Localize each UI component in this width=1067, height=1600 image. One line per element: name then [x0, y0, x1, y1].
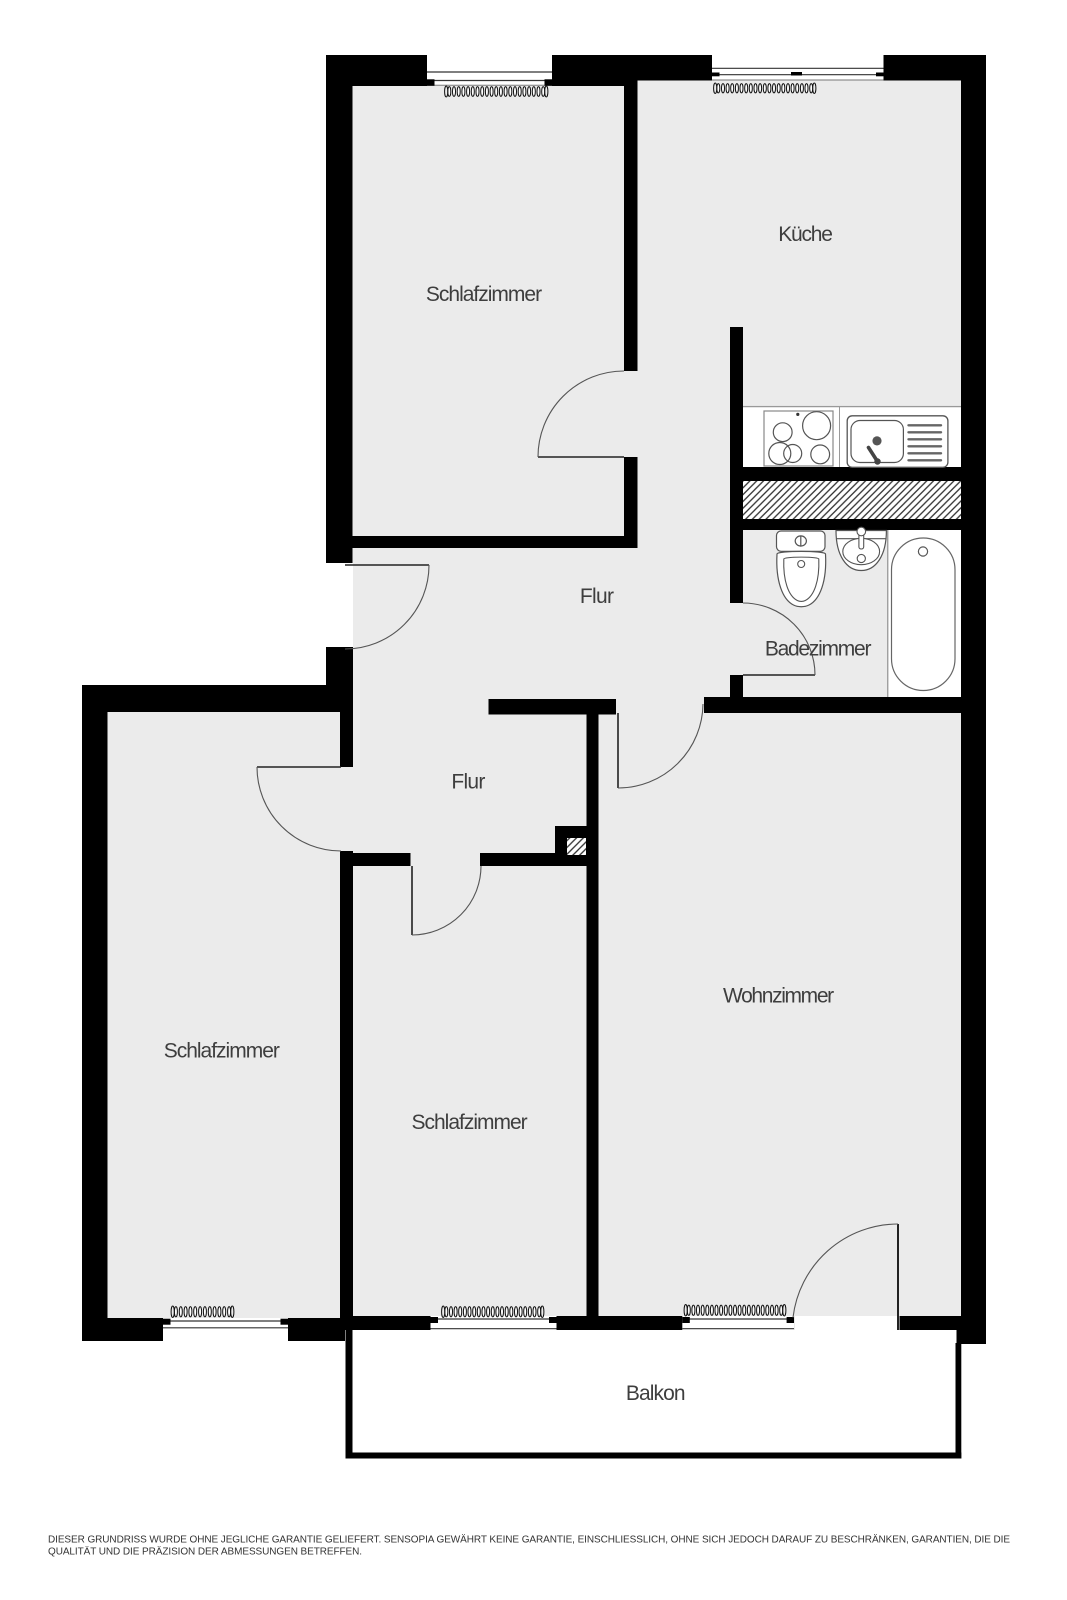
svg-text:Schlafzimmer: Schlafzimmer — [411, 1111, 527, 1134]
svg-text:Wohnzimmer: Wohnzimmer — [723, 985, 834, 1008]
svg-text:Schlafzimmer: Schlafzimmer — [426, 283, 542, 306]
svg-text:Badezimmer: Badezimmer — [765, 638, 872, 661]
svg-text:Schlafzimmer: Schlafzimmer — [164, 1040, 280, 1063]
svg-text:QUALITÄT UND DIE PRÄZISION DER: QUALITÄT UND DIE PRÄZISION DER ABMESSUNG… — [48, 1545, 362, 1557]
svg-text:Flur: Flur — [451, 771, 485, 794]
svg-text:Flur: Flur — [580, 585, 614, 608]
svg-text:DIESER GRUNDRISS WURDE OHNE JE: DIESER GRUNDRISS WURDE OHNE JEGLICHE GAR… — [48, 1533, 1010, 1545]
svg-text:Küche: Küche — [778, 223, 832, 246]
svg-text:Balkon: Balkon — [626, 1382, 685, 1405]
